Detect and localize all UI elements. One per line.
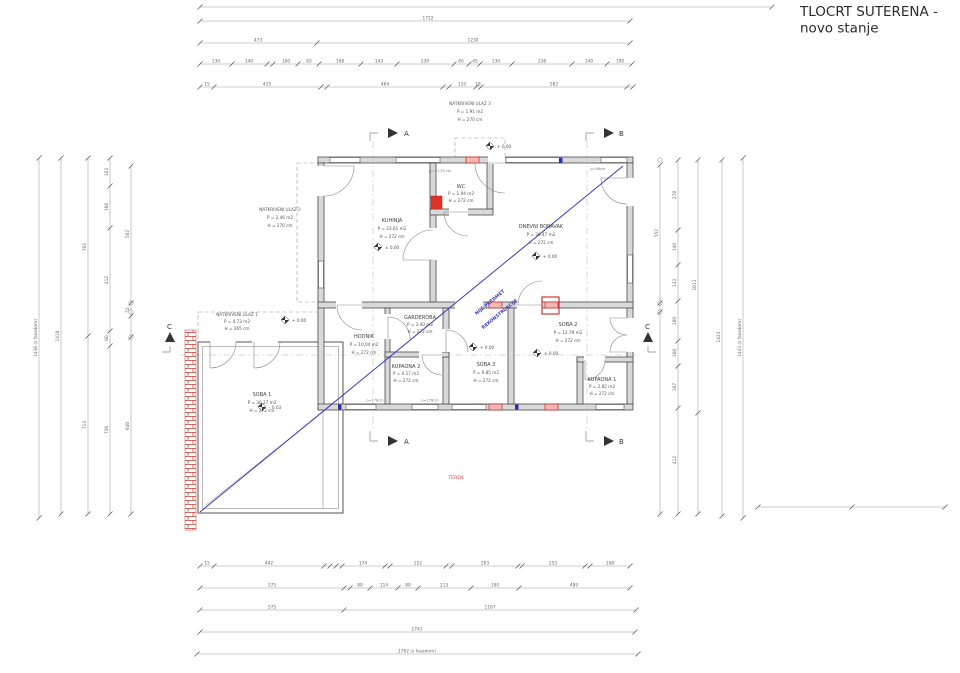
dimension-label: 168: [336, 59, 344, 65]
svg-text:NATKRIVENI ULAZ 2: NATKRIVENI ULAZ 2: [259, 207, 301, 212]
dimension-label: 412: [672, 456, 678, 464]
dimension-label: 130: [492, 59, 500, 65]
window: [628, 255, 633, 283]
svg-text:P = 9.85 m2: P = 9.85 m2: [473, 370, 499, 375]
dimension-label: 140: [585, 59, 593, 65]
svg-text:GARDEROBA: GARDEROBA: [404, 315, 437, 321]
svg-text:NATKRIVENI ULAZ 3: NATKRIVENI ULAZ 3: [449, 101, 491, 106]
section-c-right-label: C: [645, 323, 650, 331]
dimension-label: 130: [212, 59, 220, 65]
svg-text:KUPAONA 2: KUPAONA 2: [392, 364, 421, 370]
svg-text:P = 2.82 m2: P = 2.82 m2: [589, 384, 615, 389]
svg-text:SOBA 1: SOBA 1: [253, 392, 272, 398]
dimension-label: 263: [481, 561, 489, 567]
dimension-label: 1762 (s fasadom): [398, 649, 436, 655]
dimension-label: 60: [104, 335, 110, 341]
teren-label: TEREN: [447, 475, 463, 481]
dimension-label: 582: [550, 82, 558, 88]
dimension-label: 1167: [485, 605, 496, 611]
dimension-label: 1418: [55, 330, 61, 341]
svg-text:P = 10.04 m2: P = 10.04 m2: [350, 342, 379, 347]
svg-text:P = 1.94 m2: P = 1.94 m2: [448, 191, 474, 196]
svg-text:P = 30.27 m2: P = 30.27 m2: [248, 400, 277, 405]
dimension-label: 464: [381, 82, 389, 88]
dimension-label: 412: [104, 276, 110, 284]
dimension-label: 442: [265, 561, 273, 567]
elevation-label: + 0.00: [497, 144, 511, 149]
wall-note: p=178cm: [421, 399, 439, 403]
svg-text:H = 270 cm: H = 270 cm: [267, 223, 292, 228]
dimension-label: 143: [375, 59, 383, 65]
dimension-label: 110: [458, 82, 466, 88]
title-block: TLOCRT SUTERENA - novo stanje: [799, 4, 938, 37]
window: [596, 405, 624, 410]
dimension-label: 1443 (s fasadom): [737, 319, 743, 357]
svg-text:KUHINJA: KUHINJA: [382, 218, 403, 224]
dimension-label: 198: [606, 561, 614, 567]
dimension-label: 167: [672, 383, 678, 391]
dimension-label: 100: [616, 59, 624, 65]
dimension-label: 1011: [692, 279, 698, 290]
door-swings: [210, 163, 627, 380]
window: [396, 158, 440, 163]
dimension-label: 1722: [423, 16, 434, 22]
elevation-label: ± 0.00: [385, 245, 399, 250]
dimension-label: 213: [440, 583, 448, 589]
svg-text:H = 272 cm: H = 272 cm: [528, 240, 553, 245]
window: [319, 261, 324, 288]
window: [452, 405, 486, 410]
dimension-label: 83: [306, 59, 312, 65]
svg-text:H = 272 cm: H = 272 cm: [249, 408, 274, 413]
room-label-wc: WC P = 1.94 m2 H = 272 cm: [448, 184, 474, 203]
room-label-garderoba: GARDEROBA P = 3.40 m2 H = 272 cm: [404, 315, 437, 334]
svg-text:WC: WC: [457, 184, 466, 190]
svg-text:P = 4.73 m2: P = 4.73 m2: [224, 319, 250, 324]
window: [506, 158, 562, 163]
retaining-wall-hatch: [185, 330, 196, 530]
dimension-label: 180: [672, 317, 678, 325]
dimension-label: 253: [549, 561, 557, 567]
section-b-bottom-label: B: [619, 438, 624, 446]
dimension-label: 702: [82, 243, 88, 251]
dimension-label: 15: [204, 561, 210, 567]
svg-text:SOBA 3: SOBA 3: [477, 362, 496, 368]
svg-text:H = 270 cm: H = 270 cm: [457, 117, 482, 122]
dimension-label: 425: [263, 82, 271, 88]
svg-text:P = 1.91 m2: P = 1.91 m2: [457, 109, 483, 114]
ulaz2-roof-outline: [297, 163, 318, 302]
dimension-label: 174: [359, 561, 367, 567]
section-axis-lines: [180, 141, 640, 431]
room-label-ulaz2: NATKRIVENI ULAZ 2 P = 2.46 m2 H = 270 cm: [259, 207, 301, 228]
elevation-label: + 0.00: [480, 345, 494, 350]
dimension-label: 552: [654, 229, 660, 237]
window: [601, 158, 627, 163]
dimension-label: 1423: [716, 331, 722, 342]
dimension-label: 100: [282, 59, 290, 65]
elevation-label: + 0.00: [544, 351, 558, 356]
svg-text:H = 272 cm: H = 272 cm: [448, 198, 473, 203]
room-label-kuhinja: KUHINJA P = 23.61 m2 H = 272 cm: [378, 218, 407, 239]
dimension-label: 143: [672, 279, 678, 287]
svg-text:P = 2.46 m2: P = 2.46 m2: [267, 215, 293, 220]
room-label-kupaona2: KUPAONA 2 P = 4.17 m2 H = 272 cm: [392, 364, 421, 383]
section-a-bottom-label: A: [404, 438, 409, 446]
dimension-label: 60: [458, 59, 464, 65]
dimension-label: 52: [125, 307, 131, 313]
dimension-label: 278: [672, 191, 678, 199]
window: [412, 405, 438, 410]
page-title-line1: TLOCRT SUTERENA -: [799, 4, 938, 20]
dimension-label: 575: [268, 583, 276, 589]
svg-text:P = 12.79 m2: P = 12.79 m2: [554, 330, 583, 335]
dimension-label: 1438 (s fasadom): [33, 319, 39, 357]
dimension-label: 473: [254, 38, 262, 44]
dimension-label: 222: [414, 561, 422, 567]
svg-text:H = 272 cm: H = 272 cm: [473, 378, 498, 383]
room-label-soba3: SOBA 3 P = 9.85 m2 H = 272 cm: [473, 362, 499, 383]
dimension-label: 45: [472, 59, 478, 65]
dimension-label: 140: [245, 59, 253, 65]
dimension-label: 238: [538, 59, 546, 65]
section-c-left-label: C: [167, 323, 172, 331]
dimension-label: 489: [570, 583, 578, 589]
dimension-label: 640: [125, 422, 131, 430]
svg-text:P = 4.17 m2: P = 4.17 m2: [393, 371, 419, 376]
dimension-label: 103: [104, 168, 110, 176]
svg-text:H = 272 cm: H = 272 cm: [379, 234, 404, 239]
dimension-label: 168: [104, 203, 110, 211]
dimension-label: 1230: [468, 38, 479, 44]
dimension-label: 736: [104, 426, 110, 434]
dimension-label: 140: [672, 243, 678, 251]
dimension-label: 230: [421, 59, 429, 65]
svg-text:H = 272 cm: H = 272 cm: [589, 391, 614, 396]
svg-text:P = 36.47 m2: P = 36.47 m2: [527, 232, 556, 237]
room-label-soba2: SOBA 2 P = 12.79 m2 H = 272 cm: [554, 322, 583, 343]
svg-text:P = 3.40 m2: P = 3.40 m2: [407, 322, 433, 327]
section-a-top-label: A: [404, 130, 409, 138]
dimension-label: 714: [82, 421, 88, 429]
svg-text:P = 23.61 m2: P = 23.61 m2: [378, 226, 407, 231]
room-label-dnevni-boravak: DNEVNI BORAVAK P = 36.47 m2 H = 272 cm: [519, 224, 564, 245]
dimension-label: 1741: [412, 627, 423, 633]
new-wall-solid-marker: [431, 196, 442, 209]
dimension-label: 190: [491, 583, 499, 589]
svg-text:H = 272 cm: H = 272 cm: [407, 329, 432, 334]
dimension-label: 502: [125, 230, 131, 238]
section-b-top-label: B: [619, 130, 624, 138]
svg-text:H = 265 cm: H = 265 cm: [224, 326, 249, 331]
svg-text:H = 272 cm: H = 272 cm: [393, 378, 418, 383]
svg-text:NATKRIVENI ULAZ 1: NATKRIVENI ULAZ 1: [216, 312, 258, 317]
svg-text:H = 272 cm: H = 272 cm: [351, 350, 376, 355]
dimension-label: 100: [672, 349, 678, 357]
blueprint-canvas: TLOCRT SUTERENA - novo stanje: [0, 0, 960, 673]
window: [330, 158, 360, 163]
wall-note: p=+1.30 cm: [429, 169, 452, 173]
dimension-label: 80: [405, 583, 411, 589]
elevation-label: + 0.00: [292, 318, 306, 323]
wall-note: p=178cm: [366, 399, 384, 403]
dimension-label: 15: [204, 82, 210, 88]
svg-text:H = 272 cm: H = 272 cm: [555, 338, 580, 343]
svg-text:KUPAONA 1: KUPAONA 1: [588, 377, 617, 383]
room-label-ulaz1: NATKRIVENI ULAZ 1 P = 4.73 m2 H = 265 cm: [216, 312, 258, 331]
dimension-label: 18: [475, 82, 481, 88]
svg-text:SOBA 2: SOBA 2: [559, 322, 578, 328]
window: [346, 405, 376, 410]
dimension-label: 114: [380, 583, 388, 589]
svg-text:DNEVNI BORAVAK: DNEVNI BORAVAK: [519, 224, 564, 230]
page-title-line2: novo stanje: [800, 21, 879, 37]
room-label-kupaona1: KUPAONA 1 P = 2.82 m2 H = 272 cm: [588, 377, 617, 396]
elevation-label: + 0.00: [543, 254, 557, 259]
wall-note: p=98cm: [591, 167, 607, 171]
room-label-hodnik: HODNIK P = 10.04 m2 H = 272 cm: [350, 334, 379, 355]
door-openings: [318, 156, 635, 363]
dimension-label: 80: [357, 583, 363, 589]
svg-text:HODNIK: HODNIK: [354, 334, 375, 340]
room-label-soba1: SOBA 1 P = 30.27 m2 H = 272 cm: [248, 392, 277, 413]
room-label-ulaz3: NATKRIVENI ULAZ 3 P = 1.91 m2 H = 270 cm: [449, 101, 491, 122]
dimension-label: 575: [268, 605, 276, 611]
